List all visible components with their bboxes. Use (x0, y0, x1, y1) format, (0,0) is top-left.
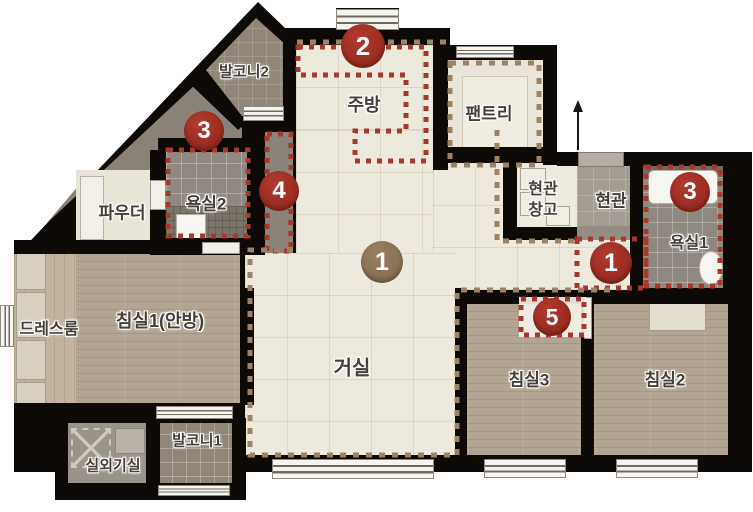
label-bath1: 욕실1 (670, 229, 708, 253)
label-bed3: 침실3 (509, 366, 550, 391)
marker-2: 2 (341, 24, 385, 68)
label-pantry: 팬트리 (466, 100, 513, 125)
label-bed2: 침실2 (645, 366, 686, 391)
label-balcony1: 발코니1 (172, 430, 222, 451)
label-kitchen: 주방 (347, 91, 380, 117)
red-dotted-zones (168, 47, 720, 335)
label-entry-storage-line2: 창고 (528, 200, 557, 221)
entrance-arrow-icon (573, 100, 583, 150)
tan-dashed-zones (250, 42, 612, 455)
label-powder: 파우더 (99, 199, 146, 224)
label-living: 거실 (334, 352, 371, 381)
living-boundary (250, 250, 612, 455)
label-entry-storage-line1: 현관 (528, 179, 557, 200)
label-dressroom: 드레스룸 (20, 315, 79, 339)
marker-5: 5 (533, 298, 571, 336)
marker-3-bath2: 3 (184, 111, 224, 151)
marker-4: 4 (259, 171, 299, 211)
label-entry: 현관 (595, 187, 626, 212)
label-bed1: 침실1(안방) (116, 307, 204, 333)
floor-plan: 2 3 4 1 1 3 5 발코니2 주방 팬트리 욕실2 파우더 현관 창고 … (0, 0, 753, 512)
label-outdoor-unit: 실외기실 (85, 455, 140, 476)
marker-3-bath1: 3 (670, 172, 710, 212)
marker-1-hall: 1 (590, 242, 632, 284)
label-bath2: 욕실2 (186, 190, 227, 215)
label-entry-storage: 현관 창고 (528, 179, 557, 221)
marker-1-living: 1 (361, 241, 403, 283)
label-balcony2: 발코니2 (219, 61, 269, 82)
